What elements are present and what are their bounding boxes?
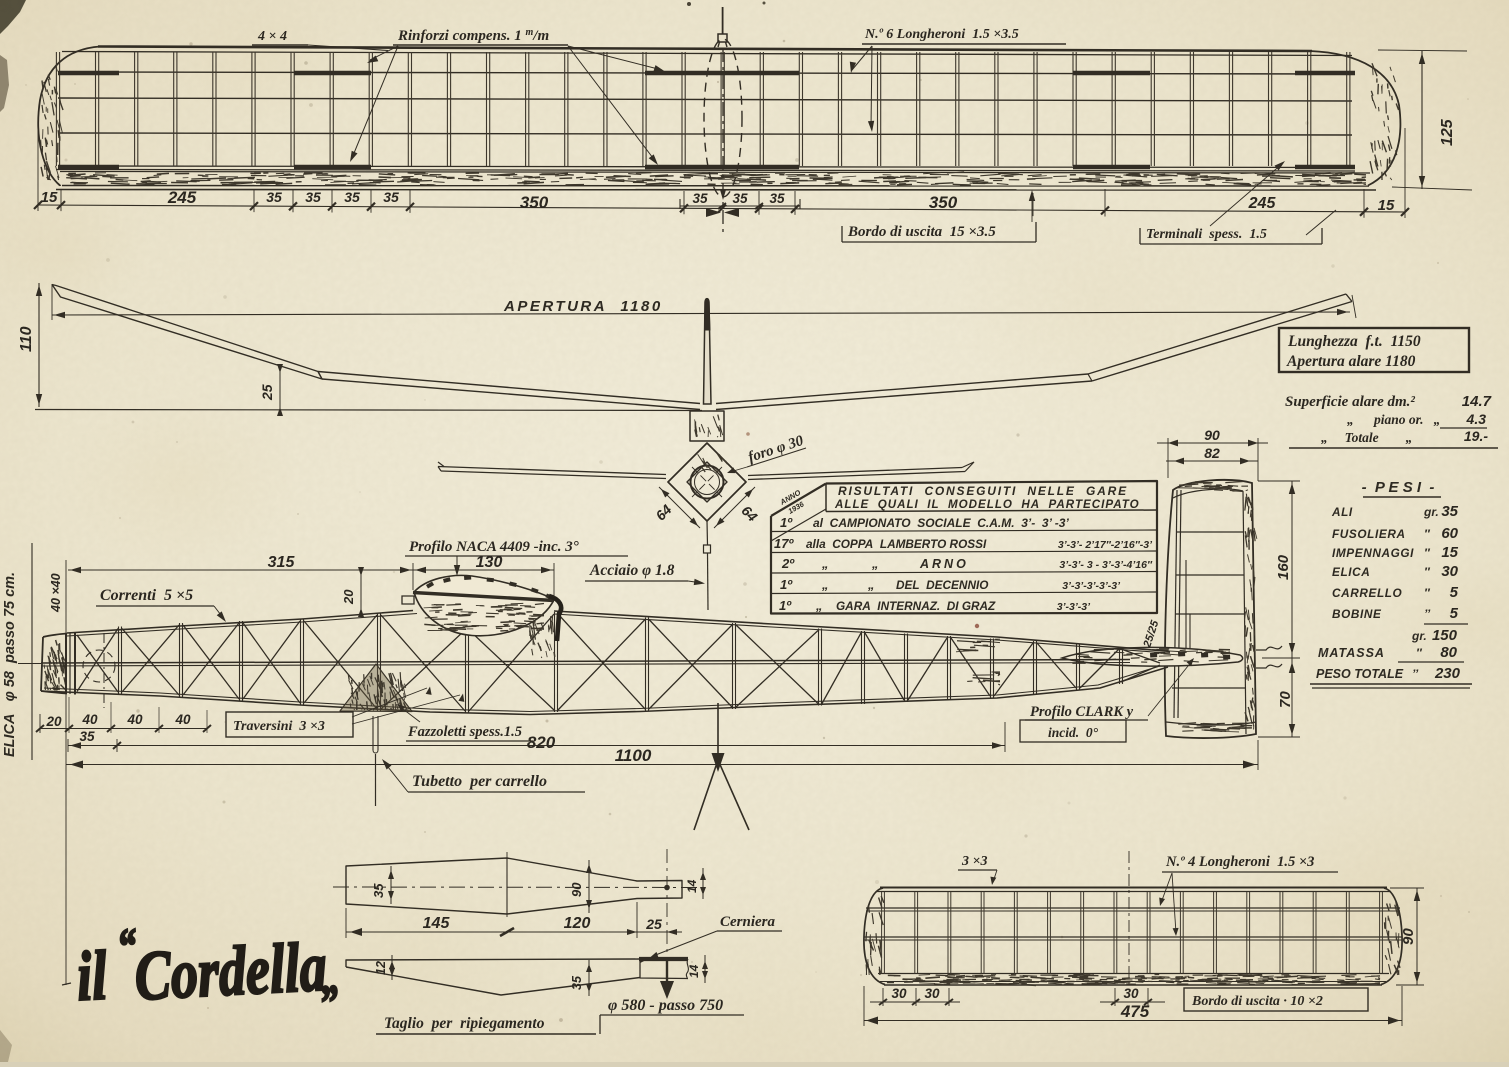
svg-text:35: 35 (266, 189, 282, 205)
svg-text:20: 20 (341, 589, 356, 605)
svg-text:1100: 1100 (615, 746, 652, 765)
svg-text:1º: 1º (779, 598, 792, 613)
svg-text:20: 20 (45, 714, 62, 729)
svg-text:350: 350 (520, 193, 549, 212)
svg-text:IMPENNAGGI: IMPENNAGGI (1332, 546, 1414, 560)
svg-text:Taglio per ripiegamento: Taglio per ripiegamento (384, 1015, 545, 1032)
svg-text:Cerniera: Cerniera (720, 914, 776, 930)
svg-text:Superficie alare dm.²: Superficie alare dm.² (1285, 394, 1415, 410)
svg-text:15: 15 (41, 189, 58, 206)
svg-text:Profilo CLARK y: Profilo CLARK y (1030, 704, 1134, 720)
svg-text:125: 125 (1439, 118, 1456, 146)
svg-text:35: 35 (383, 189, 399, 205)
svg-text:FUSOLIERA: FUSOLIERA (1332, 527, 1406, 541)
svg-text:„: „ (871, 556, 879, 571)
svg-text:N.º 4 Longheroni 1.5 ×3: N.º 4 Longheroni 1.5 ×3 (1165, 854, 1314, 870)
svg-text:90: 90 (1400, 928, 1417, 945)
svg-text:Profilo NACA 4409 -inc. 3°: Profilo NACA 4409 -inc. 3° (409, 539, 579, 555)
svg-text:110: 110 (18, 326, 35, 352)
svg-text:Tubetto per carrello: Tubetto per carrello (412, 773, 547, 790)
svg-text:RISULTATI CONSEGUITI NELLE: RISULTATI CONSEGUITI NELLE GARE (838, 484, 1128, 498)
svg-text:„: „ (821, 577, 829, 592)
svg-text:145: 145 (423, 915, 451, 932)
svg-text:90: 90 (1204, 427, 1220, 443)
svg-text:gr.: gr. (1411, 629, 1427, 643)
svg-text:- P E S I -: - P E S I - (1362, 479, 1435, 496)
svg-text:GARA INTERNAZ. DI GRAZ: GARA INTERNAZ. DI GRAZ (836, 599, 996, 613)
svg-text:35: 35 (732, 191, 748, 206)
svg-text:350: 350 (929, 193, 958, 212)
svg-text:35: 35 (769, 191, 785, 206)
svg-text:3’-3’-3’: 3’-3’-3’ (1057, 601, 1091, 613)
svg-text:35: 35 (692, 191, 708, 206)
svg-text:BOBINE: BOBINE (1332, 607, 1382, 621)
svg-text:incid. 0°: incid. 0° (1048, 725, 1099, 740)
svg-text:4.3: 4.3 (1466, 411, 1487, 427)
svg-text:19.-: 19.- (1464, 428, 1488, 444)
svg-text:25: 25 (259, 384, 275, 401)
svg-text:40: 40 (81, 712, 98, 727)
svg-text:70: 70 (1277, 691, 1294, 708)
svg-text:30: 30 (1441, 563, 1458, 580)
svg-text:ALI: ALI (1331, 505, 1353, 519)
svg-text:15: 15 (1378, 197, 1395, 214)
svg-text:alla COPPA LAMBERTO ROSSI: alla COPPA LAMBERTO ROSSI (806, 537, 987, 551)
svg-text:160: 160 (1275, 554, 1292, 580)
svg-text:245: 245 (167, 188, 197, 207)
svg-text:Lunghezza f.t. 1150: Lunghezza f.t. 1150 (1287, 333, 1421, 350)
svg-text:PESO TOTALE: PESO TOTALE (1316, 667, 1404, 681)
svg-text:35: 35 (79, 729, 95, 744)
svg-text:230: 230 (1434, 665, 1461, 682)
svg-text:35: 35 (1441, 503, 1458, 520)
svg-text:3 ×3: 3 ×3 (961, 854, 987, 869)
svg-text:gr.: gr. (1423, 505, 1439, 519)
svg-text:14: 14 (685, 879, 699, 893)
svg-text:φ 580 - passo 750: φ 580 - passo 750 (608, 997, 723, 1014)
svg-text:’’: ’’ (1424, 607, 1431, 621)
svg-text:1º: 1º (780, 515, 793, 530)
svg-text:ELICA φ 58 passo 75 cm.: ELICA φ 58 passo 75 cm. (2, 572, 18, 757)
svg-text:35: 35 (344, 189, 360, 205)
svg-text:al CAMPIONATO SOCIALE C.A.M: al CAMPIONATO SOCIALE C.A.M. 3’- 3’ -3’ (813, 516, 1069, 530)
svg-text:Cordella: Cordella (133, 927, 329, 1015)
svg-text:„: „ (815, 598, 823, 613)
svg-text:CARRELLO: CARRELLO (1332, 586, 1402, 600)
svg-text:„ piano or. „: „ piano or. „ (1347, 412, 1440, 427)
svg-text:14.7: 14.7 (1462, 393, 1492, 410)
svg-text:ALLE QUALI IL MODELLO HA: ALLE QUALI IL MODELLO HA PARTECIPATO (834, 498, 1140, 511)
svg-text:’’: ’’ (1412, 667, 1419, 681)
svg-text:17º: 17º (774, 536, 794, 551)
svg-text:N.º 6 Longheroni 1.5 ×3.5: N.º 6 Longheroni 1.5 ×3.5 (864, 27, 1019, 42)
svg-text:30: 30 (924, 986, 940, 1001)
svg-text:ARNO: ARNO (919, 557, 969, 571)
svg-text:Apertura alare 1180: Apertura alare 1180 (1286, 353, 1416, 370)
svg-text:Terminali spess. 1.5: Terminali spess. 1.5 (1146, 227, 1267, 242)
svg-text:25: 25 (645, 916, 662, 932)
svg-text:14: 14 (687, 964, 701, 978)
svg-text:40: 40 (174, 712, 191, 727)
svg-text:80: 80 (1440, 644, 1457, 661)
svg-text:15: 15 (1441, 544, 1458, 561)
svg-text:„: „ (821, 556, 829, 571)
svg-text:DEL DECENNIO: DEL DECENNIO (896, 578, 988, 592)
svg-text:1º: 1º (780, 577, 793, 592)
svg-text:Fazzoletti spess.1.5: Fazzoletti spess.1.5 (407, 724, 522, 740)
svg-text:475: 475 (1120, 1002, 1150, 1021)
svg-text:Bordo di uscita · 10 ×2: Bordo di uscita · 10 ×2 (1191, 994, 1323, 1009)
svg-text:245: 245 (1248, 195, 1277, 212)
svg-text:5: 5 (1450, 584, 1459, 601)
svg-text:ELICA: ELICA (1332, 565, 1370, 579)
svg-text:3’-3’- 2’17″-2’16″-3’: 3’-3’- 2’17″-2’16″-3’ (1058, 539, 1153, 551)
svg-text:4 × 4: 4 × 4 (257, 29, 287, 44)
svg-text:40 ×40: 40 ×40 (49, 573, 63, 613)
svg-text:12: 12 (374, 961, 388, 975)
svg-text:82: 82 (1204, 445, 1220, 461)
svg-text:„: „ (320, 949, 342, 1005)
svg-text:Bordo di uscita 15 ×3.5: Bordo di uscita 15 ×3.5 (847, 224, 996, 240)
svg-text:MATASSA: MATASSA (1318, 646, 1385, 660)
svg-text:820: 820 (527, 733, 556, 752)
svg-text:Acciaio φ 1.8: Acciaio φ 1.8 (589, 562, 675, 579)
svg-text:APERTURA 1180: APERTURA 1180 (503, 298, 663, 315)
svg-text:35: 35 (570, 975, 584, 990)
svg-text:Correnti 5 ×5: Correnti 5 ×5 (100, 587, 193, 604)
svg-text:il: il (75, 936, 110, 1016)
svg-text:Traversini 3 ×3: Traversini 3 ×3 (233, 719, 325, 734)
svg-text:30: 30 (1123, 986, 1139, 1001)
svg-text:„: „ (867, 577, 875, 592)
svg-text:3’-3’-3’-3’-3’: 3’-3’-3’-3’-3’ (1062, 580, 1121, 592)
svg-text:3’-3’- 3 - 3’-3’-4’16″: 3’-3’- 3 - 3’-3’-4’16″ (1059, 559, 1153, 571)
svg-text:35: 35 (305, 189, 321, 205)
svg-text:30: 30 (891, 986, 907, 1001)
svg-text:150: 150 (1432, 627, 1458, 644)
svg-text:120: 120 (564, 915, 591, 932)
svg-text:5: 5 (1450, 605, 1459, 622)
svg-text:„ Totale „: „ Totale „ (1321, 430, 1412, 445)
svg-text:35: 35 (371, 883, 386, 898)
svg-text:315: 315 (268, 554, 296, 571)
svg-text:130: 130 (476, 554, 503, 571)
svg-text:40: 40 (126, 712, 143, 727)
svg-text:60: 60 (1441, 525, 1458, 542)
svg-text:90: 90 (569, 882, 584, 897)
svg-text:2º: 2º (781, 556, 795, 571)
